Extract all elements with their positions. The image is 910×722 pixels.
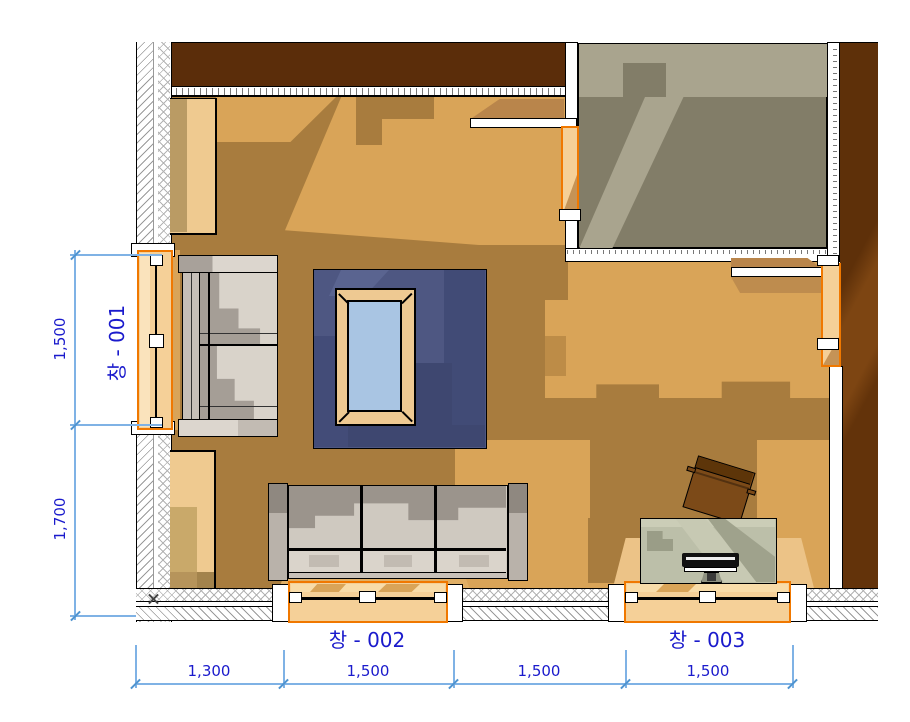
coffee-table-glass [347, 300, 402, 412]
dimension-text-bottom-1[interactable]: 1,300 [159, 662, 259, 680]
top-wall[interactable] [170, 42, 566, 87]
window-001-label[interactable]: 창 - 001 [106, 288, 128, 398]
window-003-jamb-right [790, 584, 807, 622]
extension-line [70, 615, 136, 617]
window-002-label[interactable]: 창 - 002 [292, 629, 442, 651]
dimension-line-left[interactable] [74, 250, 76, 620]
monitor[interactable] [682, 553, 739, 567]
door-right-shadow-lower [731, 277, 822, 293]
door-right-opening[interactable] [821, 263, 841, 367]
door-top-jamb [559, 209, 581, 221]
window-002[interactable] [288, 581, 448, 623]
loveseat-backrest [182, 273, 200, 419]
sofa-body [288, 485, 508, 579]
right-wall[interactable] [840, 42, 878, 588]
sofa-armrest-left [268, 483, 288, 581]
window-003[interactable] [624, 581, 791, 623]
window-003-label[interactable]: 창 - 003 [632, 629, 782, 651]
window-002-jamb-left [272, 584, 289, 622]
adjacent-room-light-band [579, 97, 689, 249]
dimension-text-bottom-3[interactable]: 1,500 [489, 662, 589, 680]
door-top-opening[interactable] [561, 126, 579, 215]
floor-light-step [545, 336, 566, 376]
adjacent-room-light-strip [579, 44, 828, 97]
door-right-jamb-top [817, 255, 839, 266]
partition-wall-left-upper[interactable] [565, 42, 578, 128]
door-right-jamb-bottom [817, 338, 839, 350]
floor-plan-canvas: 1,500 1,700 창 - 001 1,300 1,500 1,500 1,… [0, 0, 910, 722]
window-003-jamb-left [608, 584, 625, 622]
floor-shadow-corner [545, 262, 568, 300]
dimension-text-bottom-4[interactable]: 1,500 [658, 662, 758, 680]
window-002-jamb-right [446, 584, 463, 622]
extension-line [70, 254, 162, 256]
loveseat-seat-2 [200, 346, 278, 419]
floor-shadow-step2 [382, 97, 434, 119]
adjacent-room-shadow-notch [623, 63, 666, 97]
desk[interactable] [640, 518, 777, 584]
partition-wall-right[interactable] [827, 42, 840, 262]
top-wall-finish-band [170, 88, 566, 97]
dimension-text-bottom-2[interactable]: 1,500 [318, 662, 418, 680]
door-right-leaf[interactable] [731, 267, 827, 277]
right-wall-pillar[interactable] [829, 366, 843, 589]
floor-shadow-step1 [356, 97, 382, 145]
cabinet-upper[interactable] [170, 98, 217, 235]
adjacent-room-floor [578, 43, 827, 248]
dimension-line-bottom[interactable] [135, 683, 794, 685]
loveseat[interactable] [178, 255, 278, 437]
loveseat-armrest-bottom [178, 419, 278, 437]
rug-table-shadow [414, 363, 452, 425]
origin-marker [147, 592, 160, 605]
loveseat-armrest-top [178, 255, 278, 273]
cabinet-lower[interactable] [170, 450, 216, 588]
extension-line [70, 424, 162, 426]
sofa-armrest-right [508, 483, 528, 581]
coffee-table[interactable] [335, 288, 416, 426]
three-seat-sofa[interactable] [268, 483, 528, 581]
left-wall-upper[interactable] [136, 42, 172, 250]
loveseat-seat-1 [200, 273, 278, 346]
dimension-text-left-1[interactable]: 1,500 [51, 294, 69, 384]
window-001[interactable] [137, 250, 173, 430]
keyboard [684, 567, 737, 572]
dimension-text-left-2[interactable]: 1,700 [51, 474, 69, 564]
